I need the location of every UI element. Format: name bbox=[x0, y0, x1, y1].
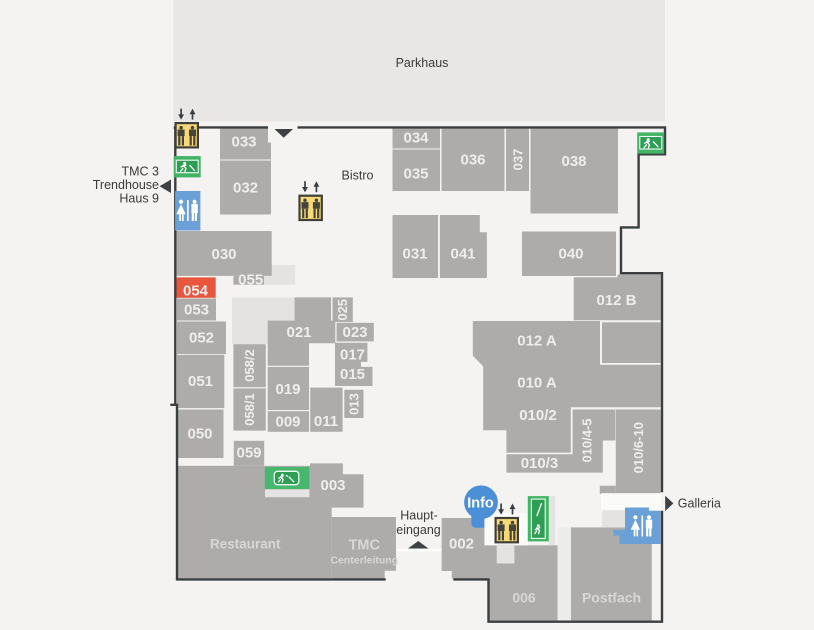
svg-text:058/1: 058/1 bbox=[242, 393, 257, 426]
svg-text:010/2: 010/2 bbox=[519, 407, 557, 424]
svg-text:Trendhouse: Trendhouse bbox=[93, 178, 159, 192]
svg-text:013: 013 bbox=[347, 393, 362, 415]
svg-text:032: 032 bbox=[233, 180, 258, 197]
svg-text:038: 038 bbox=[561, 153, 586, 170]
svg-text:054: 054 bbox=[183, 282, 209, 299]
svg-text:030: 030 bbox=[211, 246, 236, 263]
svg-text:Info: Info bbox=[467, 496, 494, 512]
svg-text:055: 055 bbox=[238, 271, 263, 288]
svg-text:034: 034 bbox=[403, 130, 429, 147]
svg-text:031: 031 bbox=[402, 245, 427, 262]
svg-text:Haupt-: Haupt- bbox=[400, 509, 438, 523]
svg-text:Parkhaus: Parkhaus bbox=[396, 56, 449, 70]
svg-text:010 A: 010 A bbox=[517, 375, 557, 392]
svg-text:002: 002 bbox=[449, 536, 474, 553]
svg-text:Galleria: Galleria bbox=[678, 496, 721, 510]
svg-text:019: 019 bbox=[275, 381, 300, 398]
svg-text:025: 025 bbox=[335, 299, 350, 321]
svg-text:012 A: 012 A bbox=[517, 333, 557, 350]
svg-text:021: 021 bbox=[286, 324, 311, 341]
svg-text:010/6-10: 010/6-10 bbox=[631, 422, 646, 473]
svg-text:TMC 3: TMC 3 bbox=[122, 165, 160, 179]
svg-text:Restaurant: Restaurant bbox=[210, 537, 281, 552]
svg-text:010/4-5: 010/4-5 bbox=[579, 418, 594, 462]
svg-text:017: 017 bbox=[340, 347, 365, 364]
svg-text:006: 006 bbox=[512, 590, 536, 606]
svg-text:Postfach: Postfach bbox=[582, 590, 641, 606]
svg-text:009: 009 bbox=[275, 414, 300, 431]
svg-text:035: 035 bbox=[403, 166, 428, 183]
svg-text:036: 036 bbox=[460, 152, 485, 169]
svg-text:052: 052 bbox=[189, 330, 214, 347]
svg-text:041: 041 bbox=[450, 245, 475, 262]
svg-text:Haus 9: Haus 9 bbox=[119, 192, 159, 206]
svg-text:050: 050 bbox=[187, 426, 212, 443]
svg-text:012 B: 012 B bbox=[596, 292, 636, 309]
svg-text:Bistro: Bistro bbox=[342, 169, 374, 183]
svg-text:010/3: 010/3 bbox=[521, 455, 559, 472]
svg-text:058/2: 058/2 bbox=[242, 349, 257, 382]
svg-text:eingang: eingang bbox=[396, 523, 441, 537]
svg-text:037: 037 bbox=[511, 149, 526, 171]
svg-text:023: 023 bbox=[342, 324, 367, 341]
svg-text:051: 051 bbox=[188, 373, 213, 390]
svg-text:053: 053 bbox=[184, 302, 209, 319]
svg-text:040: 040 bbox=[558, 245, 583, 262]
svg-text:015: 015 bbox=[340, 366, 365, 383]
svg-text:059: 059 bbox=[236, 445, 261, 462]
svg-text:011: 011 bbox=[314, 413, 338, 430]
svg-text:003: 003 bbox=[320, 477, 345, 494]
svg-text:033: 033 bbox=[231, 134, 256, 151]
svg-text:Centerleitung: Centerleitung bbox=[330, 555, 398, 567]
svg-text:TMC: TMC bbox=[349, 538, 381, 554]
